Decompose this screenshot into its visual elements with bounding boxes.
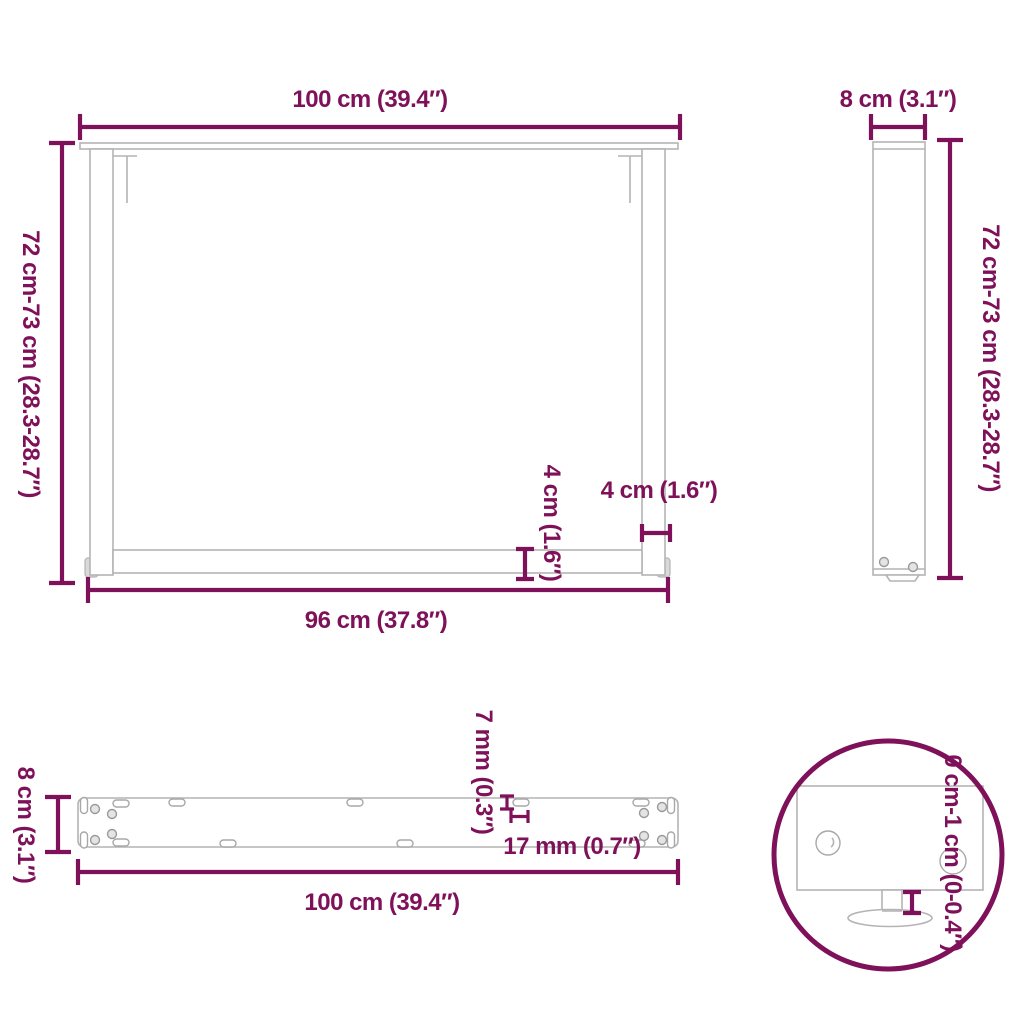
screw-hole	[108, 810, 117, 819]
table-leg-dimension-diagram: 100 cm (39.4″) 72 cm-73 cm (28.3-28.7″) …	[0, 0, 1024, 1024]
screw-hole	[91, 836, 100, 845]
slot-hole	[113, 800, 129, 807]
screw-hole	[816, 831, 840, 855]
leg-side-profile	[873, 142, 925, 575]
slot-hole	[81, 798, 88, 814]
slot-length-label: 17 mm (0.7″)	[503, 833, 641, 861]
front-height-label: 72 cm-73 cm (28.3-28.7″)	[16, 230, 44, 498]
screw-icon	[880, 558, 889, 567]
slot-hole	[633, 799, 649, 806]
dimension-line-plate-length	[78, 859, 678, 885]
hole-diameter-label: 7 mm (0.3″)	[469, 710, 497, 835]
leg-thickness-label: 4 cm (1.6″)	[601, 477, 718, 505]
dimension-line-plate-depth	[45, 797, 71, 852]
screw-hole	[658, 803, 667, 812]
diagram-linework	[0, 0, 1024, 1024]
leg-right	[642, 149, 665, 575]
leg-left	[90, 149, 113, 575]
screw-hole	[108, 830, 117, 839]
bracket-right	[618, 156, 642, 203]
slot-hole	[513, 799, 529, 806]
slot-hole	[668, 832, 675, 848]
front-view-drawing	[80, 143, 678, 577]
screw-icon	[909, 563, 918, 572]
dimension-line-top-width	[80, 114, 680, 140]
side-view-drawing	[873, 142, 925, 581]
dimension-line-height	[49, 143, 75, 583]
slot-hole	[347, 799, 363, 806]
plate-depth-label: 8 cm (3.1″)	[11, 767, 39, 884]
crossbar-thickness-label: 4 cm (1.6″)	[537, 465, 565, 582]
slot-hole	[81, 832, 88, 848]
slot-hole	[113, 839, 129, 846]
side-height-label: 72 cm-73 cm (28.3-28.7″)	[976, 224, 1004, 492]
bracket-left	[113, 156, 137, 203]
dimension-line-height	[937, 140, 963, 578]
slot-hole	[397, 840, 413, 847]
top-mounting-plate	[80, 143, 678, 149]
adjuster-stem	[882, 890, 902, 911]
slot-hole	[668, 798, 675, 814]
dimension-line-depth	[871, 114, 925, 140]
adjustment-range-label: 0 cm-1 cm (0-0.4″)	[938, 754, 966, 951]
front-bottom-width-label: 96 cm (37.8″)	[305, 607, 447, 635]
dimension-line-bottom-width	[88, 577, 668, 603]
screw-hole	[640, 809, 649, 818]
side-foot-pad	[886, 575, 919, 581]
screw-hole	[91, 805, 100, 814]
side-depth-label: 8 cm (3.1″)	[840, 86, 957, 114]
plate-length-label: 100 cm (39.4″)	[304, 889, 459, 917]
screw-hole	[640, 832, 649, 841]
slot-hole	[169, 799, 185, 806]
front-view-dimensions	[49, 114, 680, 603]
screw-hole	[658, 836, 667, 845]
slot-hole	[220, 840, 236, 847]
front-top-width-label: 100 cm (39.4″)	[292, 86, 447, 114]
